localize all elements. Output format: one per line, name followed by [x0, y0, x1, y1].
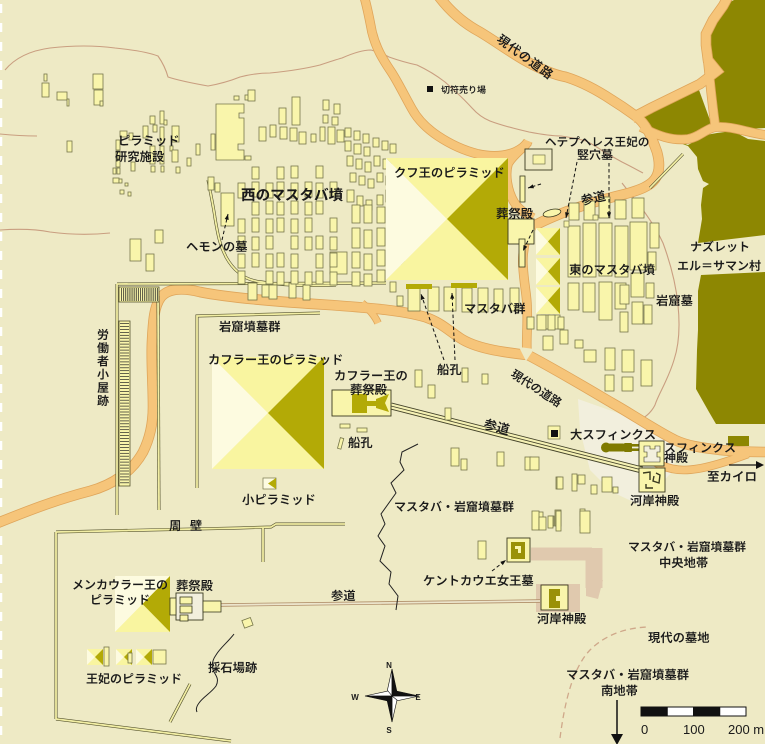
svg-text:W: W: [351, 693, 359, 702]
svg-text:E: E: [415, 693, 421, 702]
svg-text:N: N: [386, 661, 392, 670]
svg-text:S: S: [386, 726, 392, 735]
svg-text:100: 100: [683, 722, 705, 737]
svg-text:200 m: 200 m: [728, 722, 764, 737]
svg-text:0: 0: [641, 722, 648, 737]
